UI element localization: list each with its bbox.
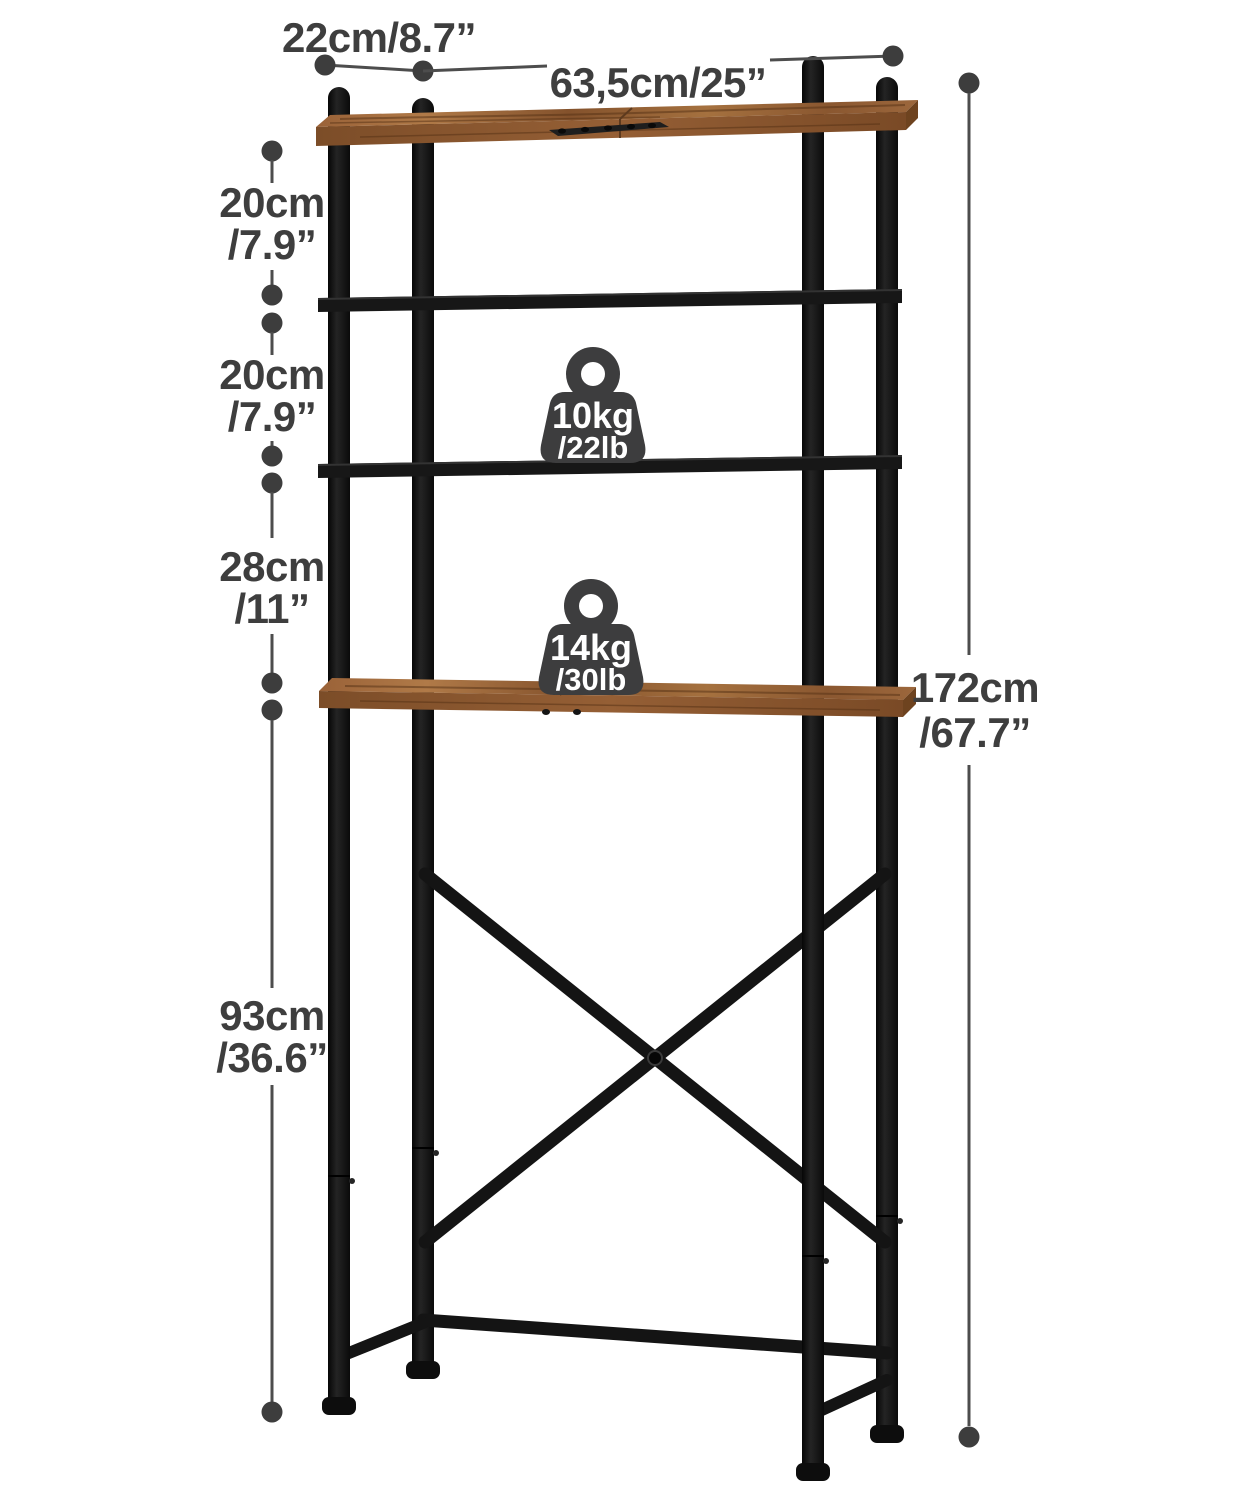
back-left-post xyxy=(412,98,434,1378)
gap-dimension-3: 28cm /11” xyxy=(219,473,324,694)
badge-handle-hole xyxy=(581,362,605,386)
gap-2-cm-label: 20cm xyxy=(219,351,324,398)
gap-dimension-1: 20cm /7.9” xyxy=(219,141,324,306)
gap-dimension-4: 93cm /36.6” xyxy=(216,700,327,1423)
height-dimension: 172cm /67.7” xyxy=(911,73,1039,1448)
dimension-endpoint-dot xyxy=(262,673,283,694)
gap-3-inch-label: /11” xyxy=(234,585,309,632)
dimension-endpoint-dot xyxy=(262,700,283,721)
weight-capacity-badge-middle: 14kg /30lb xyxy=(539,579,644,697)
gap-2-inch-label: /7.9” xyxy=(228,393,317,440)
width-dimension-label: 63,5cm/25” xyxy=(550,59,767,106)
badge-top-lb: /22lb xyxy=(558,430,629,465)
bottom-left-side-bar xyxy=(339,1323,423,1357)
dimension-endpoint-dot xyxy=(262,473,283,494)
weight-capacity-badge-top: 10kg /22lb xyxy=(541,347,646,465)
top-wood-shelf xyxy=(316,100,918,146)
gap-dimension-2: 20cm /7.9” xyxy=(219,313,324,467)
dimension-endpoint-dot xyxy=(262,141,283,162)
back-left-post-foot xyxy=(406,1361,440,1379)
dimension-endpoint-dot xyxy=(262,446,283,467)
dimension-endpoint-dot xyxy=(262,1402,283,1423)
dimension-endpoint-dot xyxy=(959,73,980,94)
badge-middle-lb: /30lb xyxy=(556,662,627,697)
height-cm-label: 172cm xyxy=(911,664,1039,711)
product-dimension-diagram: 10kg /22lb 14kg /30lb 22cm/8.7” 63,5cm/2… xyxy=(0,0,1250,1500)
back-right-post-foot xyxy=(870,1425,904,1443)
depth-dimension-label: 22cm/8.7” xyxy=(282,14,476,61)
width-dimension: 63,5cm/25” xyxy=(423,46,904,107)
front-right-post-foot xyxy=(796,1463,830,1481)
dimension-endpoint-dot xyxy=(262,313,283,334)
front-right-post xyxy=(802,56,824,1480)
bottom-right-side-bar xyxy=(813,1380,887,1414)
gap-1-cm-label: 20cm xyxy=(219,179,324,226)
gap-4-inch-label: /36.6” xyxy=(216,1034,327,1081)
dimension-endpoint-dot xyxy=(883,46,904,67)
front-left-post xyxy=(328,87,350,1414)
dimension-endpoint-dot xyxy=(959,1427,980,1448)
gap-4-cm-label: 93cm xyxy=(219,992,324,1039)
rack-diagram-canvas: 10kg /22lb 14kg /30lb 22cm/8.7” 63,5cm/2… xyxy=(0,0,1250,1500)
gap-3-cm-label: 28cm xyxy=(219,543,324,590)
badge-handle-hole xyxy=(579,594,603,618)
dimension-endpoint-dot xyxy=(315,55,336,76)
gap-1-inch-label: /7.9” xyxy=(228,221,317,268)
storage-rack-illustration xyxy=(316,56,918,1481)
front-left-post-foot xyxy=(322,1397,356,1415)
x-brace-center-bolt xyxy=(648,1051,662,1065)
dimension-endpoint-dot xyxy=(262,285,283,306)
height-inch-label: /67.7” xyxy=(919,709,1030,756)
